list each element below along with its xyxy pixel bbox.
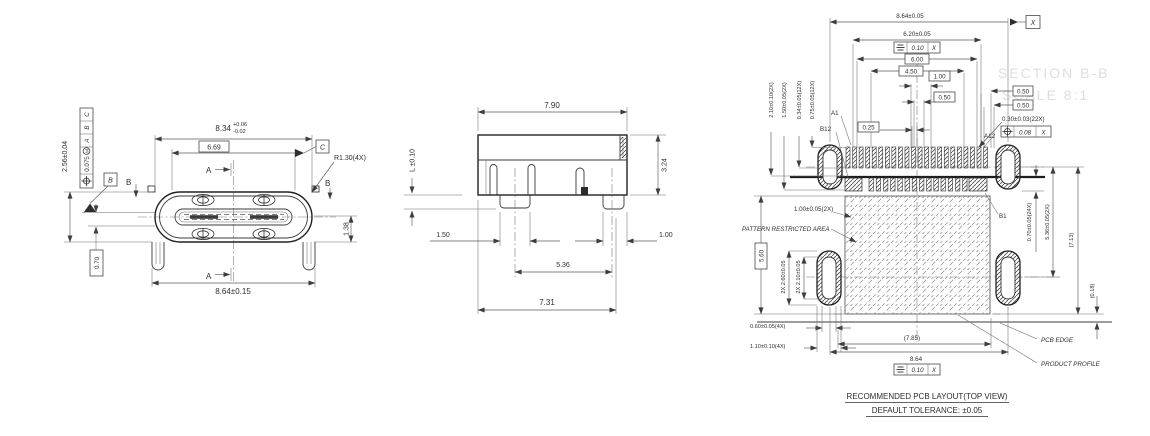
section-a-top: A bbox=[206, 166, 212, 175]
datum-x-arrow-icon bbox=[1010, 19, 1018, 26]
dim-wall-value: 0.70 bbox=[94, 256, 101, 269]
dim-050-center-value: 0.50 bbox=[938, 95, 951, 102]
pin-a1-label: A1 bbox=[831, 110, 839, 117]
dim-785: (7.85) bbox=[838, 318, 991, 348]
section-a-bottom: A bbox=[206, 272, 212, 281]
dim-450-value: 4.50 bbox=[905, 69, 918, 76]
slot-length-dims: 2X 2.60±0.05 2X 2.10±0.05 bbox=[781, 251, 822, 305]
dim-260-value: 2X 2.60±0.05 bbox=[781, 260, 787, 293]
fcf-datum-c: C bbox=[84, 112, 91, 117]
side-leads bbox=[490, 165, 588, 195]
dim-025-value: 0.25 bbox=[862, 125, 875, 132]
smt-pad-row-bottom bbox=[869, 178, 967, 191]
dim-864-bottom-value: 8.64 bbox=[910, 356, 923, 363]
restricted-area-label: PATTERN RESTRICTED AREA bbox=[742, 226, 830, 233]
dim-side-height: 3.24 bbox=[630, 135, 669, 195]
dim-height: 2.56±0.04 bbox=[62, 141, 152, 242]
symmetry-datum: X bbox=[931, 45, 937, 52]
datum-c-triangle-icon bbox=[295, 149, 304, 157]
side-legs bbox=[500, 195, 624, 209]
side-body-outline bbox=[478, 135, 627, 195]
section-b-left: B bbox=[126, 178, 131, 187]
pcb-layout-view: SECTION B-B SCALE 8:1 bbox=[742, 13, 1112, 417]
dim-width-value: 8.34 bbox=[215, 124, 231, 133]
dim-050-right-2: 0.50 bbox=[1017, 103, 1030, 110]
dim-100: 1.00 bbox=[899, 71, 950, 148]
tolerance-note: DEFAULT TOLERANCE: ±0.05 bbox=[872, 406, 983, 415]
svg-text:M: M bbox=[84, 149, 89, 153]
dim-v4-value: 0.75±0.05(12X) bbox=[810, 81, 816, 120]
usb-c-connector-drawing: 8.34 +0.06 -0.02 6.69 C R1.30(4X) 2.56±0… bbox=[0, 0, 1150, 436]
pattern-restricted-area bbox=[845, 196, 990, 314]
dim-018-value: (0.18) bbox=[1090, 284, 1096, 299]
dim-620-value: 6.20±0.05 bbox=[903, 31, 931, 38]
dim-050-right-1: 0.50 bbox=[1017, 89, 1030, 96]
dim-side-width: 7.90 bbox=[478, 101, 627, 131]
side-view: 7.90 L ±0.10 3.24 1.50 1.00 bbox=[404, 101, 673, 314]
dim-tongue-value: 6.69 bbox=[207, 145, 221, 152]
dim-slot-span-value: 8.64±0.05 bbox=[896, 13, 924, 20]
datum-x-label: X bbox=[1030, 20, 1036, 27]
dim-standoff-value: L ±0.10 bbox=[410, 149, 417, 172]
pin-b12-label: B12 bbox=[820, 126, 832, 133]
symmetry-bot-tol: 0.10 bbox=[911, 367, 924, 374]
dim-leg-left-value: 1.50 bbox=[436, 232, 450, 239]
dim-tongue: 6.69 C bbox=[172, 140, 329, 190]
product-profile-label: PRODUCT PROFILE bbox=[1041, 361, 1101, 368]
dim-row-span-value: 5.36±0.05(2X) bbox=[1045, 204, 1051, 240]
corner-radius-callout: R1.30(4X) bbox=[312, 155, 366, 192]
dim-pad-len-value: 0.70±0.05(24X) bbox=[1027, 203, 1033, 242]
dim-v1-value: 2.10±0.10(2X) bbox=[769, 82, 775, 118]
pin-a12-label: A12 bbox=[984, 133, 996, 140]
dim-body: 7.31 bbox=[478, 200, 616, 314]
dim-pad-width-value: 0.30±0.03(22X) bbox=[1002, 116, 1045, 123]
datum-b-triangle-icon bbox=[84, 204, 96, 213]
corner-radius-value: R1.30(4X) bbox=[334, 155, 366, 162]
dim-110-value: 1.10±0.10(4X) bbox=[750, 344, 786, 350]
dim-050-center: 0.50 bbox=[902, 92, 955, 148]
restricted-area-callouts: 1.00±0.05(2X) PATTERN RESTRICTED AREA bbox=[742, 206, 856, 242]
position-datum: X bbox=[1040, 130, 1046, 137]
pin-b1-label: B1 bbox=[999, 213, 1007, 220]
position-fcf: C B A 0.075 M bbox=[80, 108, 93, 188]
dim-785-value: (7.85) bbox=[904, 335, 920, 342]
dim-width-tol-dn: -0.02 bbox=[233, 129, 246, 135]
symmetry-tol-value: 0.10 bbox=[911, 45, 924, 52]
dim-100-value: 1.00 bbox=[933, 74, 946, 81]
dim-tongue-offset-value: 1.38 bbox=[344, 222, 351, 236]
dim-560-value: 5.60 bbox=[759, 249, 766, 262]
dim-leg-left: 1.50 bbox=[430, 212, 560, 246]
dim-width-tol-up: +0.06 bbox=[233, 122, 247, 128]
dim-pad-width: 0.30±0.03(22X) 0.08 X bbox=[979, 116, 1051, 147]
dim-210-value: 2X 2.10±0.05 bbox=[796, 260, 802, 293]
symmetry-fcf-top: 0.10 X bbox=[894, 42, 940, 53]
symmetry-bot-datum: X bbox=[931, 367, 937, 374]
pcb-view-title: RECOMMENDED PCB LAYOUT(TOP VIEW) bbox=[847, 392, 1008, 401]
fcf-datum-a: A bbox=[84, 138, 91, 143]
dim-leg-right: 1.00 bbox=[575, 212, 673, 246]
dim-height-value: 2.56±0.04 bbox=[62, 141, 69, 172]
technical-drawing-sheet: 8.34 +0.06 -0.02 6.69 C R1.30(4X) 2.56±0… bbox=[0, 0, 1150, 436]
dim-060-value: 0.60±0.05(4X) bbox=[750, 324, 786, 330]
fcf-datum-b: B bbox=[84, 125, 91, 129]
fcf-tolerance-value: 0.075 bbox=[84, 156, 91, 172]
dim-side-width-value: 7.90 bbox=[544, 101, 560, 110]
dim-025: 0.25 bbox=[858, 122, 930, 148]
dim-body-value: 7.31 bbox=[539, 298, 555, 307]
edge-callouts: PCB EDGE PRODUCT PROFILE bbox=[958, 315, 1101, 368]
front-view: 8.34 +0.06 -0.02 6.69 C R1.30(4X) 2.56±0… bbox=[62, 108, 366, 296]
dim-leg-span: 5.36 bbox=[515, 262, 612, 272]
dim-wall: 0.70 bbox=[88, 204, 155, 276]
dim-100-2x-value: 1.00±0.05(2X) bbox=[794, 206, 833, 213]
dim-600-value: 6.00 bbox=[911, 57, 924, 64]
dim-leg-span-value: 5.36 bbox=[556, 262, 570, 269]
dim-span-value: 8.64±0.15 bbox=[215, 287, 251, 296]
dim-713-value: (7.13) bbox=[1069, 233, 1075, 248]
slot-width-dims: 0.60±0.05(4X) 1.10±0.10(4X) bbox=[750, 306, 856, 352]
dim-v3-value: 0.34±0.05(12X) bbox=[797, 81, 803, 120]
ghost-section-text: SECTION B-B bbox=[998, 65, 1109, 81]
pcb-edge-label: PCB EDGE bbox=[1041, 337, 1074, 344]
section-b-right: B bbox=[325, 179, 330, 188]
view-title: RECOMMENDED PCB LAYOUT(TOP VIEW) DEFAULT… bbox=[845, 392, 1009, 417]
dim-tongue-offset: 1.38 bbox=[314, 216, 357, 242]
position-tol-value: 0.08 bbox=[1019, 130, 1032, 137]
dim-leg-right-value: 1.00 bbox=[659, 232, 673, 239]
dim-side-height-value: 3.24 bbox=[662, 158, 669, 172]
datum-b-label: B bbox=[108, 178, 113, 185]
dim-v2-value: 1.50±0.05(2X) bbox=[782, 82, 788, 118]
